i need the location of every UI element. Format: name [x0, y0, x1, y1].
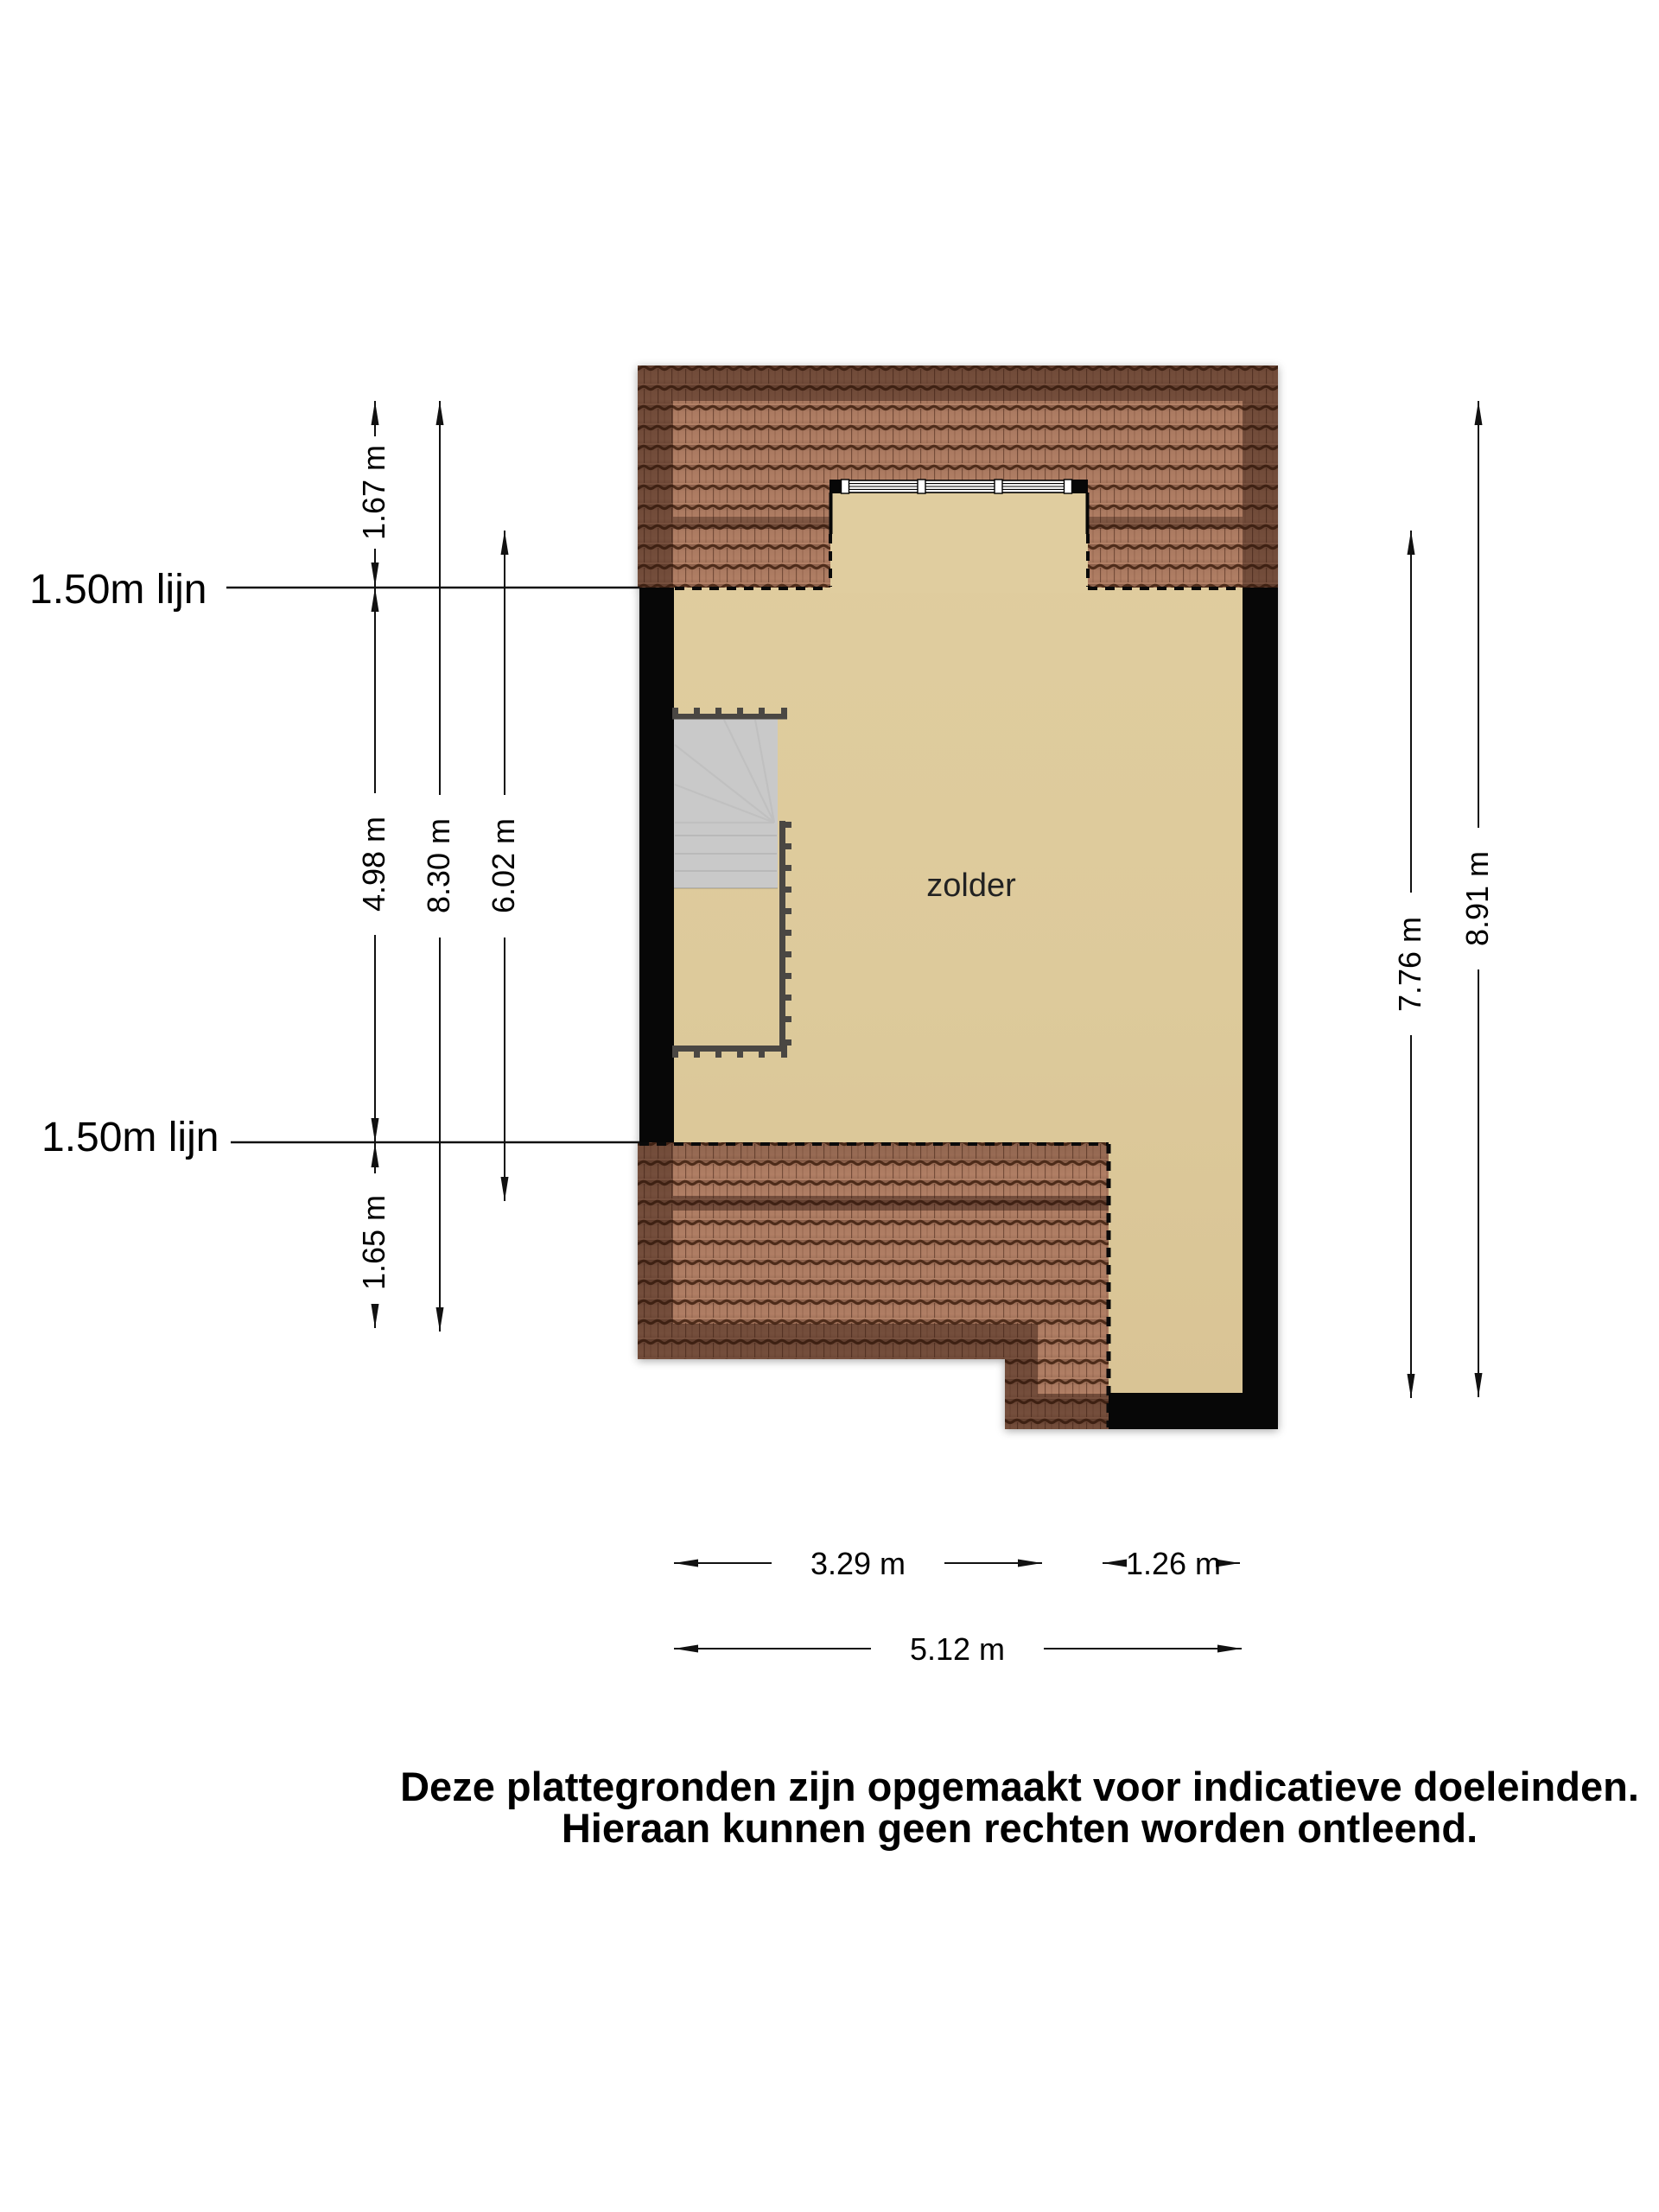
svg-text:5.12 m: 5.12 m [910, 1631, 1005, 1667]
svg-text:8.30 m: 8.30 m [421, 818, 456, 913]
svg-text:zolder: zolder [926, 868, 1016, 904]
svg-text:1.67 m: 1.67 m [356, 445, 391, 540]
svg-text:7.76 m: 7.76 m [1392, 917, 1427, 1012]
svg-text:8.91 m: 8.91 m [1459, 851, 1495, 946]
svg-text:1.26 m: 1.26 m [1126, 1546, 1221, 1581]
svg-text:1.50m lijn: 1.50m lijn [29, 567, 207, 613]
svg-text:Hieraan kunnen geen rechten wo: Hieraan kunnen geen rechten worden ontle… [562, 1805, 1478, 1851]
svg-text:3.29 m: 3.29 m [810, 1546, 906, 1581]
svg-text:4.98 m: 4.98 m [356, 817, 391, 912]
svg-text:1.50m lijn: 1.50m lijn [41, 1115, 219, 1160]
svg-text:6.02 m: 6.02 m [486, 818, 521, 913]
svg-text:1.65 m: 1.65 m [356, 1195, 391, 1290]
svg-text:Deze plattegronden zijn opgema: Deze plattegronden zijn opgemaakt voor i… [400, 1764, 1639, 1809]
